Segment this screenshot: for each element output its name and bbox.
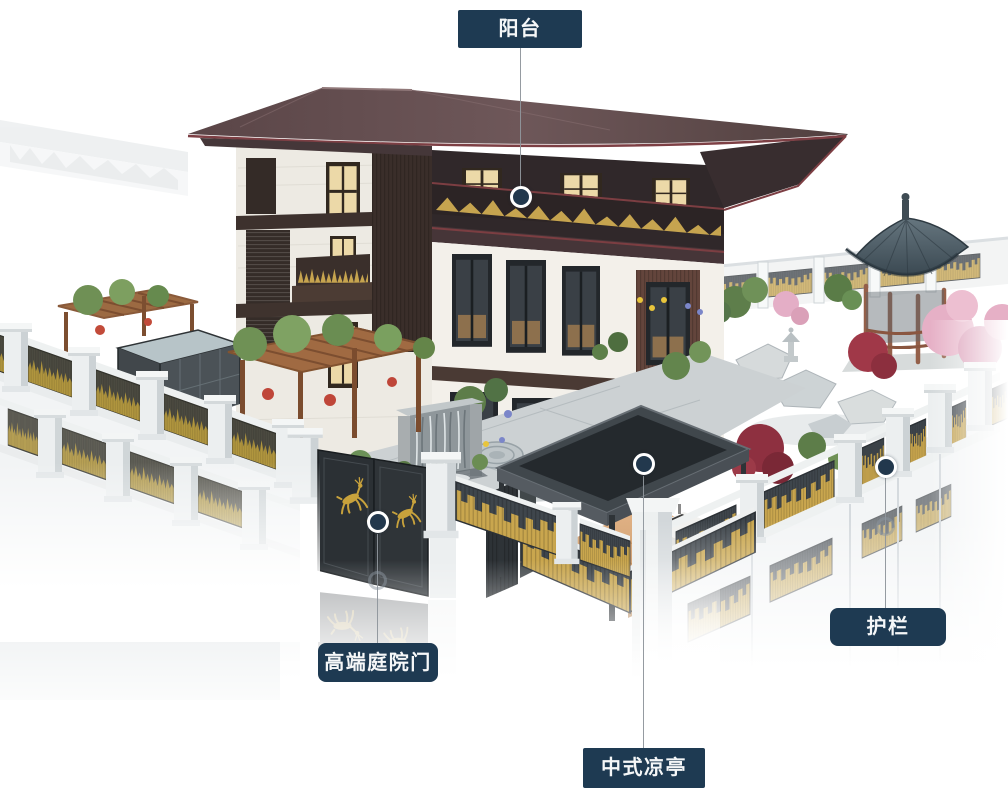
villa-garden-showcase: 阳台 高端庭院门 中式凉亭 护栏 [0,0,1008,800]
window [246,158,276,214]
background-wall-left [0,120,188,196]
small-balcony [292,254,374,308]
scene-illustration [0,0,1008,800]
